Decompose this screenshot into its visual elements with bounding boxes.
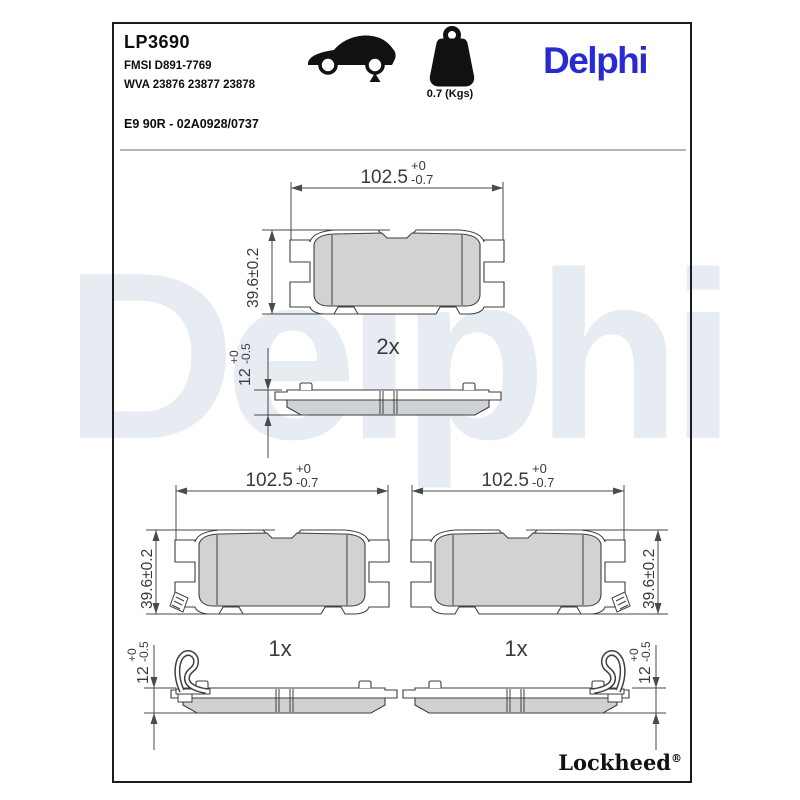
pad-side-view (275, 383, 501, 415)
part-number: LP3690 (124, 32, 190, 53)
ece-approval-number: E9 90R - 02A0928/0737 (124, 117, 259, 131)
weight-value: 0.7 (Kgs) (404, 88, 496, 100)
datasheet-page: Delphi LP3690 FMSI D891-7769 WVA 23876 2… (0, 0, 800, 800)
width-tol-minus: -0.7 (411, 172, 433, 187)
width-value: 102.5 (245, 470, 293, 491)
rear-axle-marker-icon (370, 73, 381, 82)
thickness-tol-minus: -0.5 (239, 343, 253, 364)
thickness-tol-minus: -0.5 (137, 641, 151, 662)
lockheed-text: Lockheed (558, 750, 671, 775)
technical-drawings: 102.5 +0 -0.7 39.6±0.2 2x 12 +0 (0, 0, 800, 800)
rear-wheel (367, 57, 383, 73)
registered-mark: ® (671, 752, 682, 765)
car-icon (303, 27, 399, 87)
wva-reference: WVA 23876 23877 23878 (124, 79, 255, 91)
width-tol-plus: +0 (296, 461, 311, 476)
width-tol-minus: -0.7 (532, 475, 554, 490)
drawing-pad-2x: 102.5 +0 -0.7 39.6±0.2 2x 12 +0 (227, 158, 504, 458)
pad-side-view (403, 681, 629, 713)
front-wheel (320, 57, 336, 73)
thickness-value: 12 (637, 666, 654, 684)
width-tol-plus: +0 (411, 158, 426, 173)
delphi-logo: Delphi (543, 40, 647, 82)
height-value: 39.6±0.2 (641, 549, 658, 609)
drawing-pad-1x-left: 102.5 +0 -0.7 39.6±0.2 1x 12 +0 (125, 461, 397, 750)
drawing-pad-1x-right: 102.5 +0 -0.7 39.6±0.2 1x 12 +0 (403, 461, 668, 750)
thickness-value: 12 (237, 368, 254, 386)
width-value: 102.5 (481, 470, 529, 491)
quantity-label: 1x (504, 636, 527, 661)
pad-plan-view (290, 230, 504, 314)
pad-side-view (171, 681, 397, 713)
width-tol-minus: -0.7 (296, 475, 318, 490)
header-divider (120, 149, 686, 151)
fmsi-reference: FMSI D891-7769 (124, 60, 212, 72)
width-tol-plus: +0 (532, 461, 547, 476)
quantity-label: 2x (376, 334, 399, 359)
thickness-value: 12 (135, 666, 152, 684)
lockheed-brand: Lockheed® (0, 750, 682, 775)
weight-icon (426, 25, 478, 87)
height-value: 39.6±0.2 (139, 549, 156, 609)
width-value: 102.5 (360, 167, 408, 188)
height-value: 39.6±0.2 (245, 248, 262, 308)
thickness-tol-minus: -0.5 (639, 641, 653, 662)
pad-plan-view (175, 530, 389, 614)
pad-plan-view (411, 530, 625, 614)
quantity-label: 1x (268, 636, 291, 661)
